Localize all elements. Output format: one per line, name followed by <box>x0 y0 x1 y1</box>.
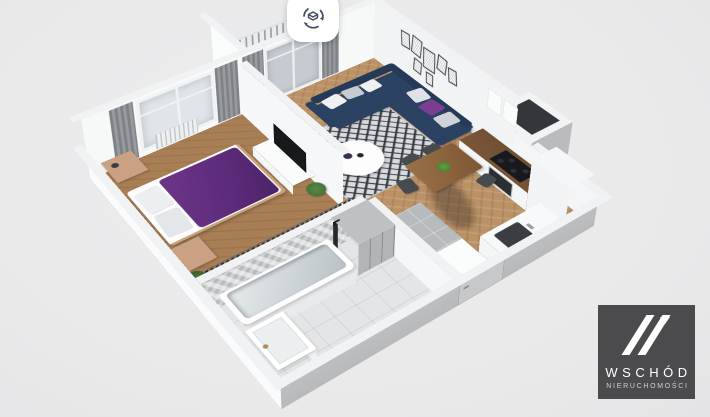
burner <box>507 158 516 164</box>
green-centerpiece <box>434 160 454 173</box>
rotate-3d-icon <box>298 2 328 32</box>
brand-tagline: NIERUCHOMOŚCI <box>606 383 688 390</box>
wall-art-frame <box>401 29 410 50</box>
rotate-view-button[interactable] <box>287 0 339 42</box>
brand-logo-mark <box>620 315 674 357</box>
burner <box>509 168 518 174</box>
logo-triangle <box>660 317 670 324</box>
wall-art-frame <box>426 71 433 88</box>
wall-art-frame <box>413 57 422 76</box>
floorplan-canvas: WSCHÓD NIERUCHOMOŚCI <box>0 0 710 417</box>
wall-art-frame <box>448 67 457 87</box>
burner <box>521 168 530 174</box>
table-decor <box>356 152 365 158</box>
wall-art-frame <box>436 54 447 76</box>
brand-name: WSCHÓD <box>605 365 691 380</box>
dresser-decor <box>110 162 120 169</box>
door-handle <box>464 285 469 290</box>
curtain-panel <box>215 60 241 124</box>
burner <box>496 158 505 164</box>
apartment-plan <box>91 58 594 409</box>
wall-art-frame <box>411 34 423 59</box>
brand-watermark: WSCHÓD NIERUCHOMOŚCI <box>598 305 695 399</box>
